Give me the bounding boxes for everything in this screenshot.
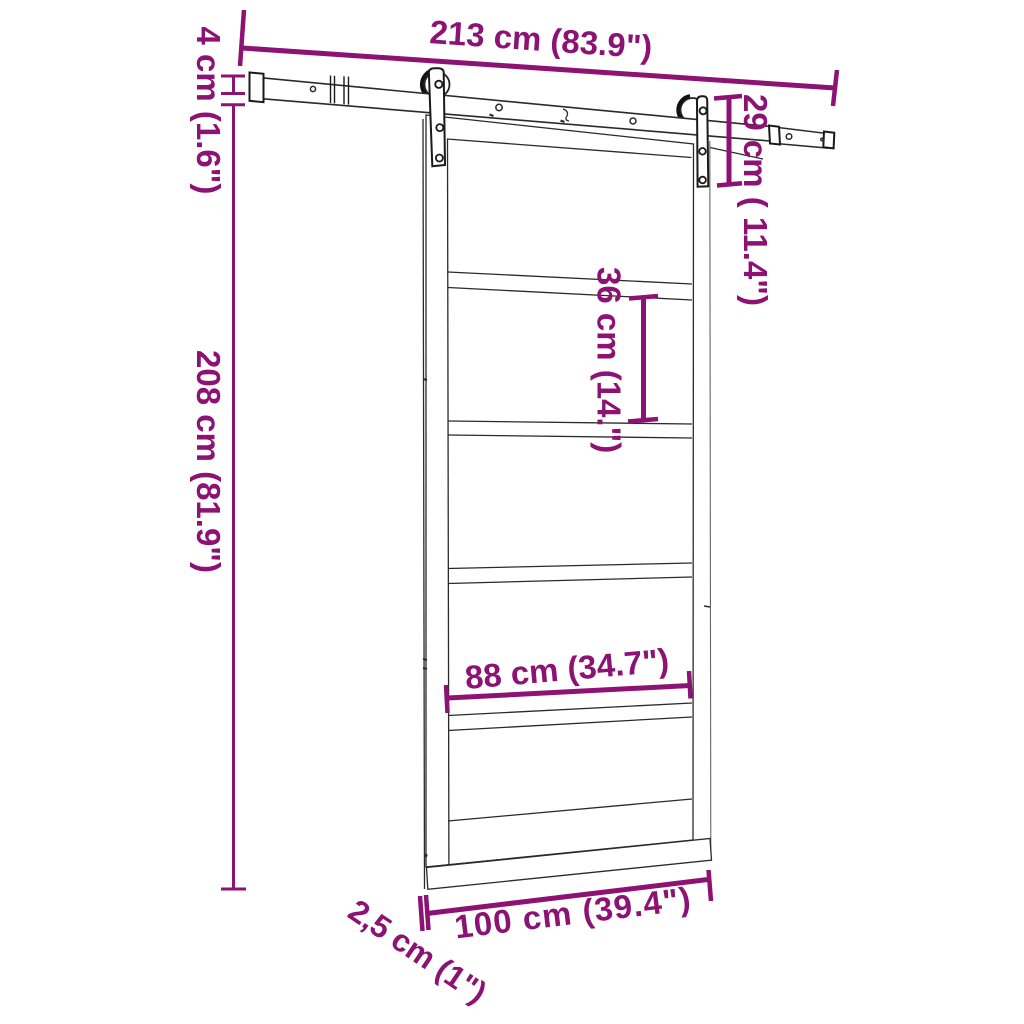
svg-text:29 cm ( 11.4"): 29 cm ( 11.4") [737, 94, 774, 306]
svg-text:4 cm (1.6"): 4 cm (1.6") [190, 27, 227, 195]
svg-text:36 cm (14."): 36 cm (14.") [591, 267, 628, 453]
svg-text:208 cm (81.9"): 208 cm (81.9") [190, 350, 227, 573]
